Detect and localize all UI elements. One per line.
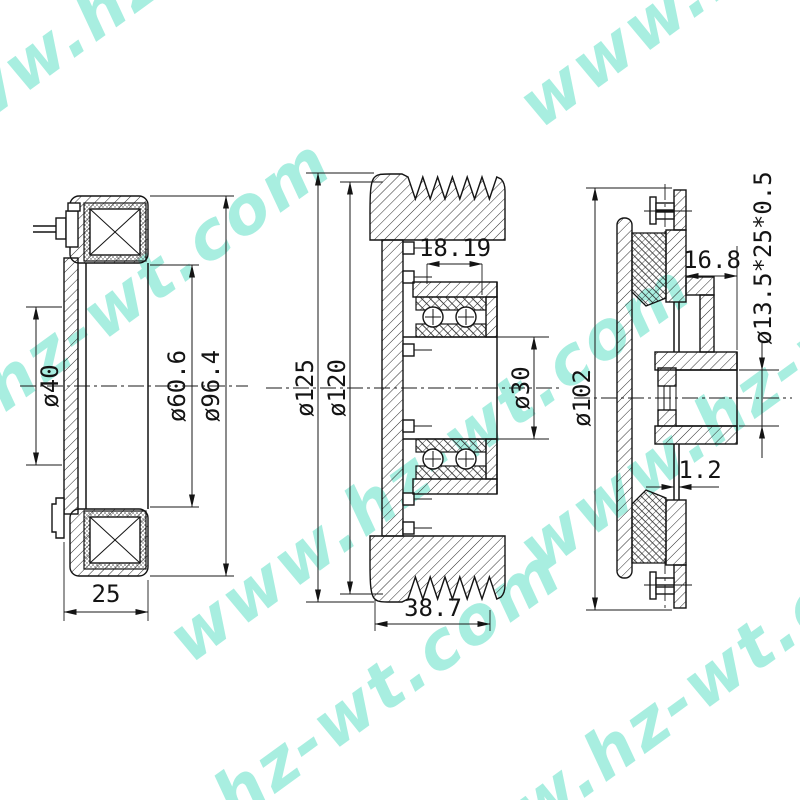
bearing-inner-race-top xyxy=(416,324,486,337)
dim-label: 25 xyxy=(92,580,121,608)
hub-spline-sleeve xyxy=(658,368,676,426)
hub-arm xyxy=(686,277,714,295)
dim-label: 38.7 xyxy=(404,594,462,622)
hub-rubber-damper-bottom xyxy=(632,490,666,563)
hub-plate-lower xyxy=(666,500,686,565)
dim-label: ø30 xyxy=(507,366,535,409)
hub-plate-top xyxy=(674,190,686,230)
dim-label: 18.19 xyxy=(419,234,491,262)
watermark-text: www.hz-wt.com xyxy=(0,122,346,552)
drawing-svg: www.hz-wt.com www.hz-wt.com www.hz-wt.co… xyxy=(0,0,800,800)
coil-flange xyxy=(64,258,78,514)
watermark-text: www.hz-wt.com xyxy=(504,0,800,143)
dim-label: ø13.5*25*0.5 xyxy=(749,171,777,344)
dim-label: ø102 xyxy=(568,369,596,427)
technical-drawing-canvas: www.hz-wt.com www.hz-wt.com www.hz-wt.co… xyxy=(0,0,800,800)
dim-label: 1.2 xyxy=(678,456,721,484)
watermark-text: www.hz-wt.com xyxy=(0,0,436,183)
bearing-outer-race-top xyxy=(416,297,486,310)
dim-label: 16.8 xyxy=(683,246,741,274)
bearing-outer-race-bottom xyxy=(416,466,486,479)
coil-tab xyxy=(52,498,64,538)
hub-boss-top-wall xyxy=(655,352,737,370)
pulley-rim-top xyxy=(370,174,505,240)
dim-label: ø40 xyxy=(36,364,64,407)
pulley-front-wall xyxy=(382,240,403,536)
coil-terminal xyxy=(33,203,80,247)
dim-label: ø60.6 xyxy=(163,350,191,422)
hub-plate-bottom xyxy=(674,565,686,608)
dim-label: ø96.4 xyxy=(197,350,225,422)
dim-label: ø120 xyxy=(323,359,351,417)
bearing-inner-race-bottom xyxy=(416,439,486,452)
hub-boss-bottom-wall xyxy=(655,426,737,444)
pulley-rim-bottom xyxy=(370,536,505,602)
hub-friction-ring xyxy=(617,218,632,578)
hub-rubber-damper-top xyxy=(632,233,666,306)
dim-label: ø125 xyxy=(291,359,319,417)
hub-arm-wall xyxy=(700,295,714,352)
